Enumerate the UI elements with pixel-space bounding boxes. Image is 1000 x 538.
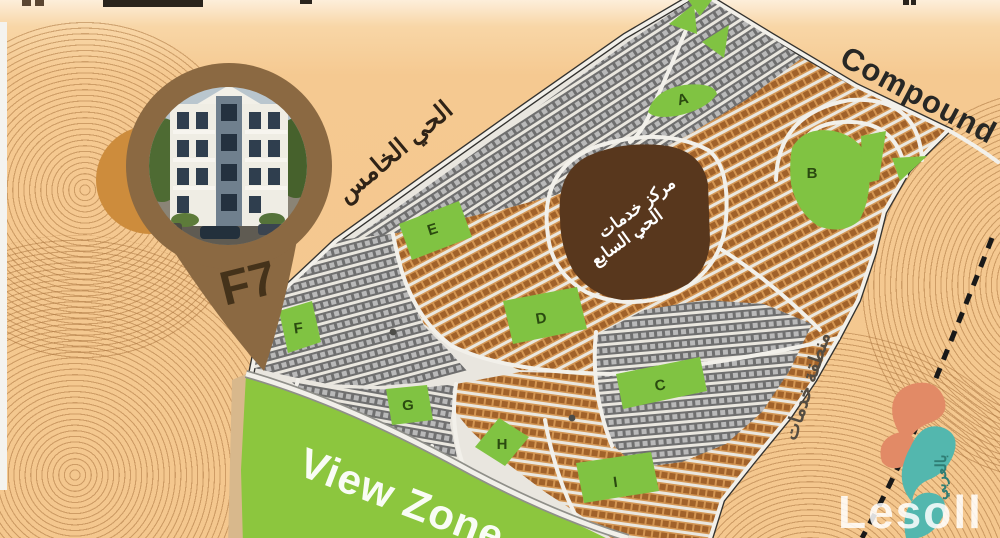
zone-label-h: H <box>497 436 508 453</box>
zone-label-b: B <box>807 165 818 182</box>
lesoll-watermark: Lesoll <box>838 486 983 538</box>
compound-masterplan-map: مركز خدمات الحي السابع <box>0 0 1000 538</box>
zone-label-g: G <box>402 397 414 414</box>
mini-roundabout <box>569 415 576 422</box>
cropped-header-artifacts <box>22 0 916 7</box>
masterplan-screenshot: مركز خدمات الحي السابع <box>0 0 1000 538</box>
mini-roundabout <box>390 329 397 336</box>
